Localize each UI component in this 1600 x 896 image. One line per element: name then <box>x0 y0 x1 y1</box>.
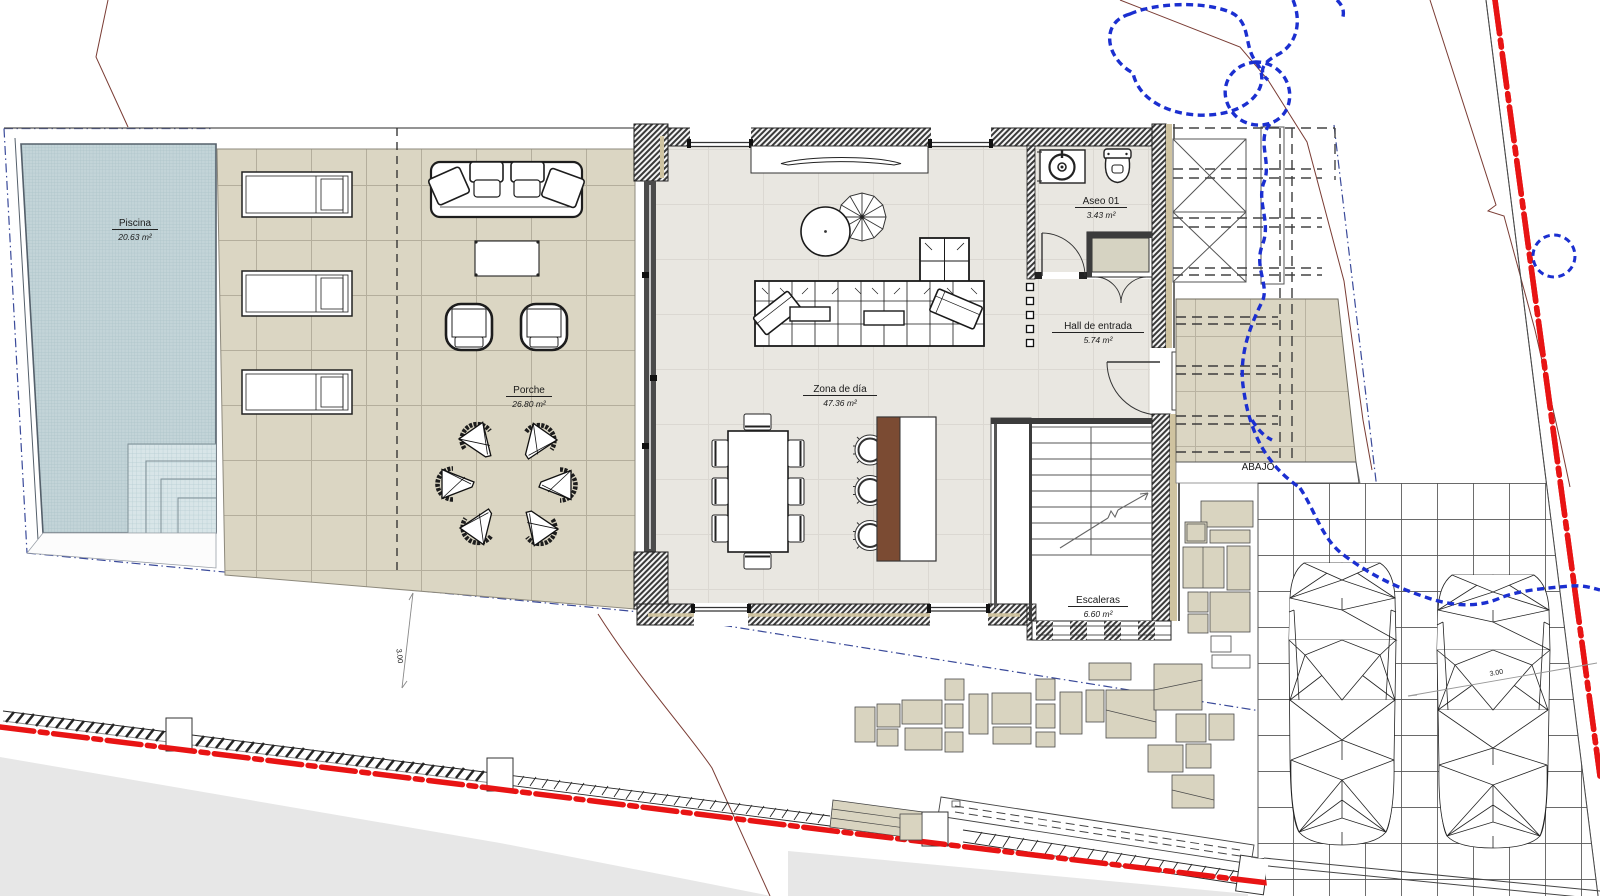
svg-text:Hall de entrada: Hall de entrada <box>1064 321 1132 332</box>
svg-text:Zona de día: Zona de día <box>813 384 867 395</box>
svg-text:Escaleras: Escaleras <box>1076 595 1120 606</box>
svg-text:3.43 m²: 3.43 m² <box>1087 210 1117 220</box>
svg-text:Aseo 01: Aseo 01 <box>1083 196 1120 207</box>
svg-text:47.36 m²: 47.36 m² <box>823 398 858 408</box>
svg-text:20.63 m²: 20.63 m² <box>117 232 153 242</box>
svg-text:Piscina: Piscina <box>119 218 152 229</box>
svg-text:26.80 m²: 26.80 m² <box>511 399 547 409</box>
svg-text:3.00: 3.00 <box>394 648 405 664</box>
svg-text:6.60 m²: 6.60 m² <box>1084 609 1114 619</box>
svg-text:5.74 m²: 5.74 m² <box>1084 335 1114 345</box>
svg-text:Porche: Porche <box>513 385 545 396</box>
svg-text:ABAJO: ABAJO <box>1242 462 1275 473</box>
